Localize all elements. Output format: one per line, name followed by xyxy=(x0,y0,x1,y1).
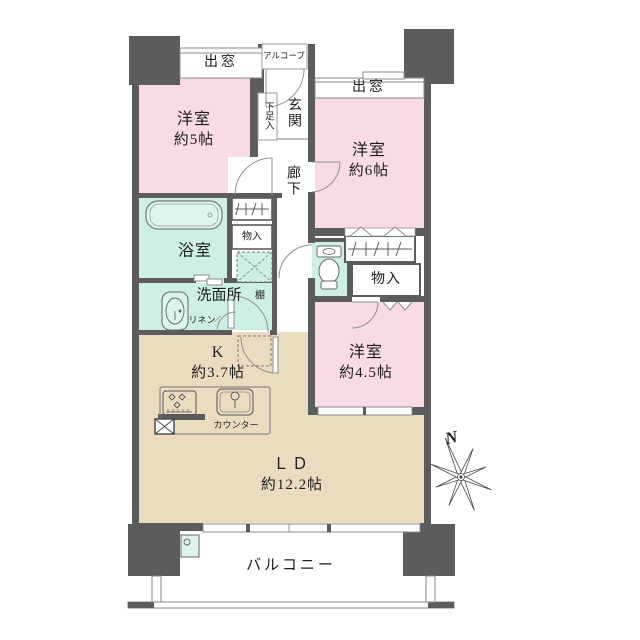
floorplan-page: 出窓 アルコーブ 下足入 玄関 廊下 出窓 洋室 約5帖 洋室 約6帖 洋室 約… xyxy=(0,0,640,640)
floorplan-drawing xyxy=(0,0,640,640)
bedroom6-label: 洋室 約6帖 xyxy=(349,141,390,181)
balcony-sliding-window xyxy=(203,524,420,532)
balcony-divider-left xyxy=(152,576,161,602)
pipe-space-icon xyxy=(155,419,174,434)
bedroom5-label: 洋室 約5帖 xyxy=(174,110,215,150)
counter-label: カウンター xyxy=(213,420,258,432)
balcony-rail xyxy=(128,602,454,608)
bathtub-icon xyxy=(146,201,222,229)
closet-hall-label: 物入 xyxy=(242,231,262,244)
linen-label: リネン xyxy=(188,315,215,327)
shoe-cabinet-label: 下足入 xyxy=(262,102,272,131)
balcony-label: バルコニー xyxy=(246,556,336,576)
bay-window-right-label: 出窓 xyxy=(352,79,386,97)
pillar-top-left xyxy=(129,36,180,85)
living-dining-label: ＬＤ 約12.2帖 xyxy=(261,455,323,495)
pillar-top-right xyxy=(404,29,454,84)
compass-rose-icon xyxy=(420,428,499,521)
washroom-label: 洗面所 xyxy=(196,286,241,306)
toilet-door-arc xyxy=(279,245,312,278)
alcove-label: アルコーブ xyxy=(263,50,305,61)
shelf-label: 棚 xyxy=(255,290,265,303)
hallway-label: 廊下 xyxy=(285,165,299,197)
entrance-label: 玄関 xyxy=(286,97,300,129)
bathroom-label: 浴室 xyxy=(178,242,212,263)
bedroom45-label: 洋室 約4.5帖 xyxy=(339,343,393,383)
closet-right-label: 物入 xyxy=(371,271,401,289)
washbasin-icon xyxy=(162,292,188,330)
pillar-bottom-left xyxy=(128,524,180,576)
toilet-icon xyxy=(317,246,341,289)
living-dining-area xyxy=(308,415,424,523)
kitchen-label: K 約3.7帖 xyxy=(191,343,245,383)
slop-sink-icon xyxy=(181,535,199,557)
balcony-divider-right xyxy=(426,576,435,602)
bay-window-left-label: 出窓 xyxy=(204,54,238,72)
